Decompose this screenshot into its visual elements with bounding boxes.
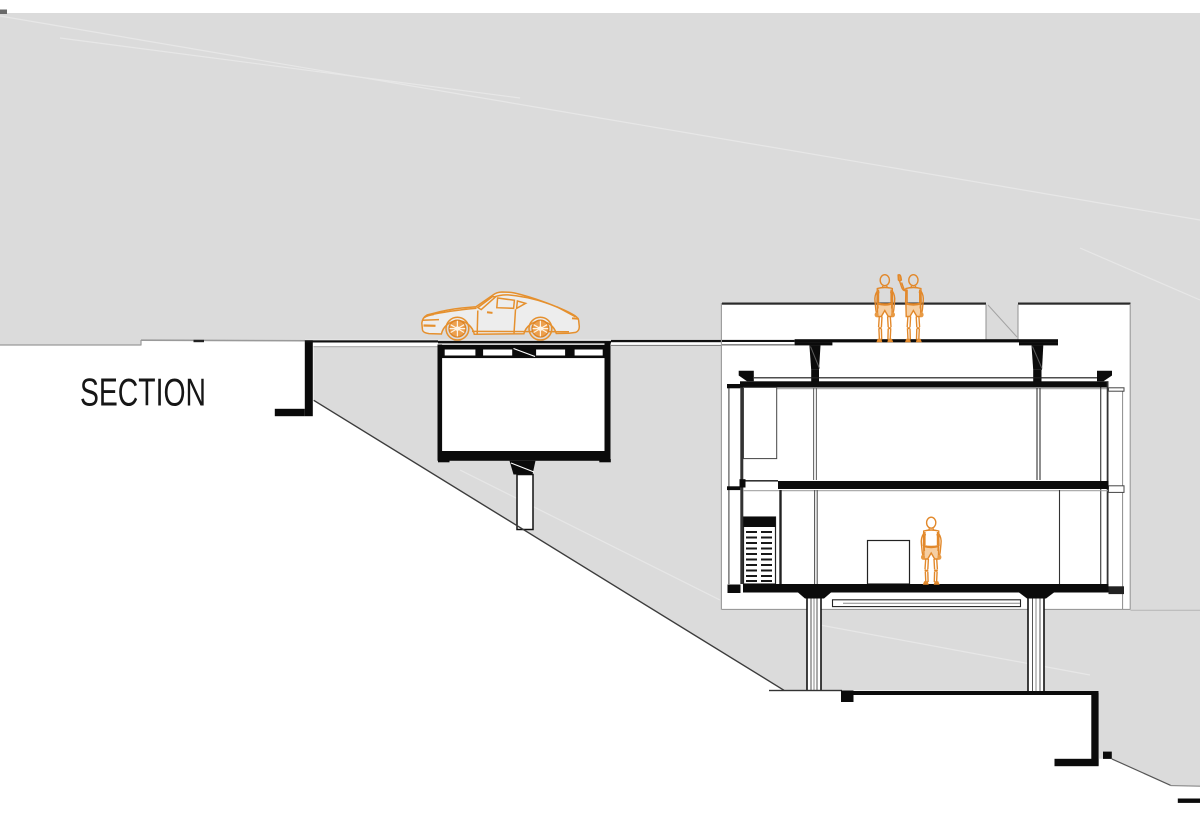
- svg-text:SECTION: SECTION: [80, 372, 206, 415]
